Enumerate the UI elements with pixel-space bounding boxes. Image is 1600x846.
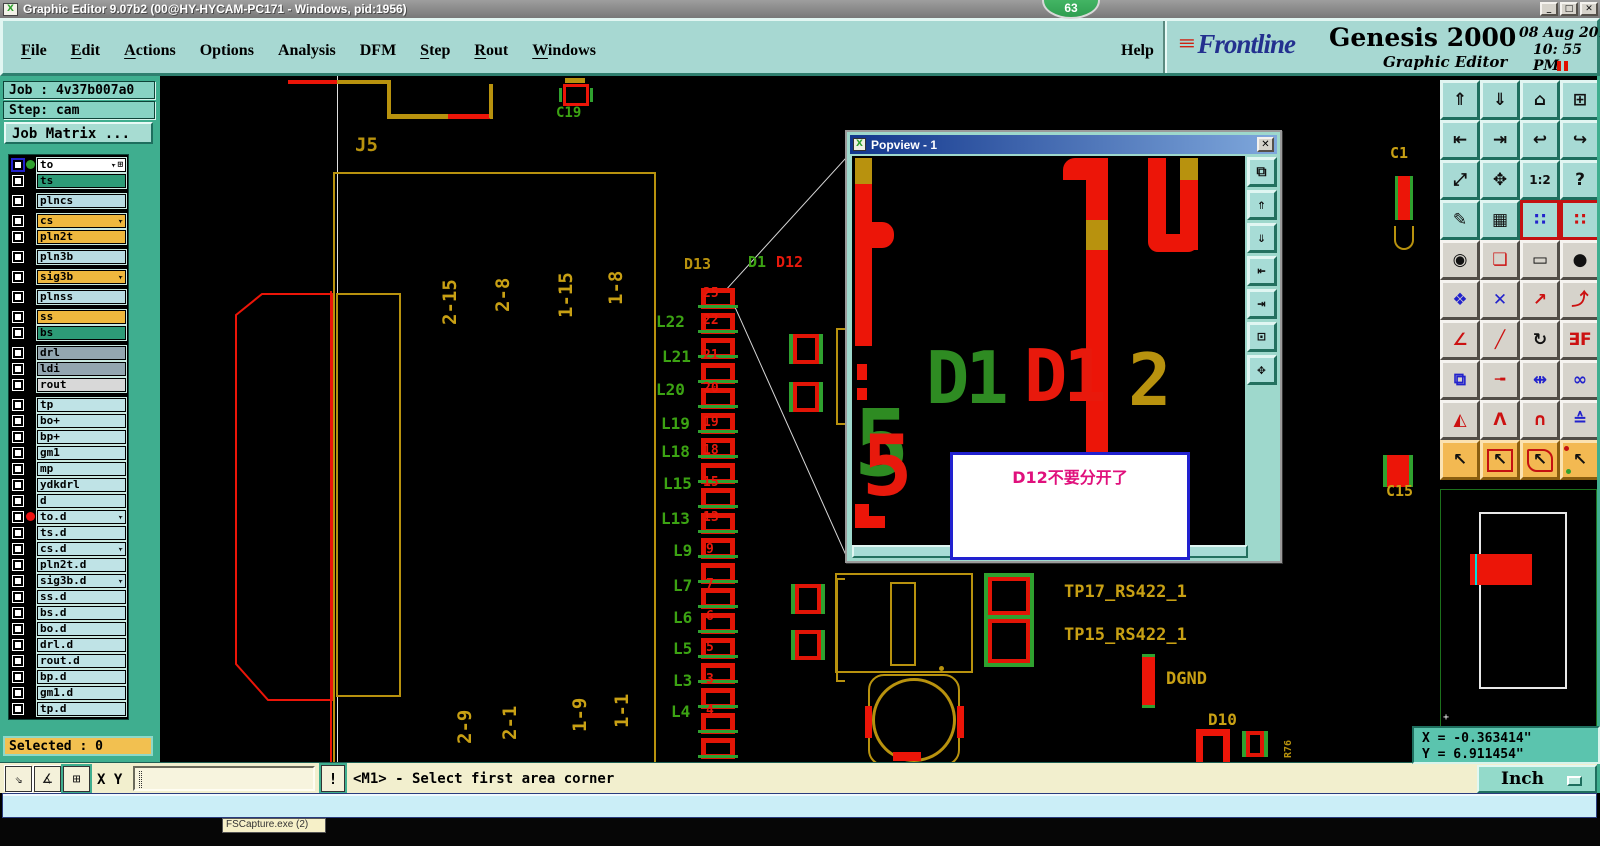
measure-button[interactable]: ▭: [1520, 240, 1560, 280]
layer-label: bp.d: [37, 670, 126, 684]
canvas-label: D1: [748, 255, 766, 270]
layer-label: pln2t: [37, 230, 126, 244]
layer-checkbox[interactable]: [13, 328, 23, 338]
popview-pan-left-button[interactable]: ⇤: [1247, 256, 1277, 286]
layer-cursor-icon: ➤: [116, 271, 125, 281]
measure-angle-button[interactable]: ∡: [34, 766, 61, 792]
canvas-label: 19: [703, 416, 719, 429]
move-point-button[interactable]: ↗: [1520, 280, 1560, 320]
canvas-label: TP15_RS422_1: [1064, 627, 1187, 644]
layer-cursor-icon: ➤: [116, 543, 125, 553]
popview-clone-button[interactable]: ⧉: [1247, 157, 1277, 187]
canvas-label: L9: [673, 543, 692, 559]
canvas-label: D13: [684, 257, 711, 272]
center-view-button-icon: ✥: [1493, 172, 1507, 189]
mirror-button-icon: ∃F: [1568, 332, 1591, 349]
canvas-label: L13: [661, 511, 690, 527]
menu-analysis[interactable]: Analysis: [278, 42, 336, 60]
rotate-button[interactable]: ↻: [1520, 320, 1560, 360]
profile-edit-button[interactable]: ❏: [1480, 240, 1520, 280]
copy-point-button[interactable]: ⤴: [1560, 280, 1600, 320]
status-bar: ⇘ ∡ ⊞ X Y : ! <M1> - Select first area c…: [0, 762, 1600, 793]
canvas-label: 13: [703, 511, 719, 524]
coordinate-y: Y = 6.911454": [1422, 747, 1598, 763]
arch-button-icon: ∩: [1533, 412, 1547, 429]
layer-row-to.d[interactable]: to.d➤: [11, 509, 126, 524]
layer-label: tp.d: [37, 702, 126, 716]
zoom-in-window-button-icon: ⇑: [1453, 92, 1467, 109]
canvas-label: 25: [703, 287, 719, 300]
layer-checkbox[interactable]: [13, 196, 23, 206]
pan-left-button-icon: ⇤: [1453, 132, 1467, 149]
home-view-button-icon: ⌂: [1534, 92, 1546, 109]
layer-label: ss: [37, 310, 126, 324]
mirror-button[interactable]: ∃F: [1560, 320, 1600, 360]
layer-display-alt-button[interactable]: ∷: [1560, 200, 1600, 240]
select-feature-button-icon: ◉: [1453, 252, 1468, 269]
layer-checkbox[interactable]: [13, 348, 23, 358]
measure-distance-button[interactable]: ⇘: [5, 766, 32, 792]
window-controls: _□✕: [1540, 2, 1598, 16]
peak-button[interactable]: Λ: [1480, 400, 1520, 440]
layer-checkbox[interactable]: [13, 480, 23, 490]
layer-row-sig3b[interactable]: sig3b➤: [11, 269, 126, 284]
layer-row-plnss[interactable]: plnss: [11, 289, 126, 304]
layer-display-button-icon: ∷: [1534, 212, 1546, 229]
dimension-button[interactable]: ⇹: [1520, 360, 1560, 400]
selected-count: Selected : 0: [3, 736, 153, 756]
select-pointer-button[interactable]: ↖: [1440, 440, 1480, 480]
copy-pad-button[interactable]: ⧉: [1440, 360, 1480, 400]
layer-row-mp[interactable]: mp: [11, 461, 126, 476]
layer-label: drl.d: [37, 638, 126, 652]
canvas-label: 20: [703, 382, 719, 395]
popview-zoom-out-button[interactable]: ⇓: [1247, 223, 1277, 253]
canvas-label: L7: [673, 578, 692, 594]
window-titlebar[interactable]: X Graphic Editor 9.07b2 (00@HY-HYCAM-PC1…: [0, 0, 1600, 18]
layer-checkbox[interactable]: [13, 364, 23, 374]
popview-zoom-in-button[interactable]: ⇑: [1247, 190, 1277, 220]
layer-grid-icon: ⊞: [118, 160, 123, 170]
minimize-button[interactable]: _: [1540, 2, 1558, 16]
move-point-button-icon: ↗: [1533, 292, 1547, 309]
menu-bar: FileEditActionsOptionsAnalysisDFMStepRou…: [0, 18, 1600, 76]
layer-checkbox[interactable]: [13, 672, 23, 682]
layer-row-pln2t[interactable]: pln2t: [11, 229, 126, 244]
layer-label: rout: [37, 378, 126, 392]
menu-file[interactable]: File: [21, 42, 47, 60]
navigator-marker-line: [1475, 554, 1477, 585]
date-display: 08 Aug 2016: [1519, 25, 1600, 41]
layer-label: bs: [37, 326, 126, 340]
net-select-button-icon: ❖: [1452, 292, 1467, 309]
layer-row-bp+[interactable]: bp+: [11, 429, 126, 444]
layer-label: d: [37, 494, 126, 508]
popview-label: D1: [1024, 340, 1103, 412]
layer-checkbox[interactable]: [13, 464, 23, 474]
peak-button-icon: Λ: [1493, 412, 1506, 429]
alert-button[interactable]: !: [321, 765, 345, 792]
canvas-label: 7: [706, 578, 714, 591]
arch-button[interactable]: ∩: [1520, 400, 1560, 440]
layer-checkbox[interactable]: [13, 512, 23, 522]
popview-window-icon: X: [853, 138, 866, 151]
canvas-label: 3: [706, 673, 714, 686]
layer-row-ts[interactable]: ts: [11, 173, 126, 188]
canvas-label: 2-15: [441, 279, 460, 325]
units-value: Inch: [1501, 769, 1544, 789]
layer-row-gm1[interactable]: gm1: [11, 445, 126, 460]
delete-feature-button[interactable]: ✕: [1480, 280, 1520, 320]
profile-view-button[interactable]: ↪: [1560, 120, 1600, 160]
units-toggle-icon[interactable]: [1567, 776, 1582, 786]
layer-checkbox[interactable]: [13, 496, 23, 506]
home-view-button[interactable]: ⌂: [1520, 80, 1560, 120]
canvas-label: L18: [661, 444, 690, 460]
layer-checkbox[interactable]: [13, 312, 23, 322]
layer-checkbox[interactable]: [13, 656, 23, 666]
annotation-note-text: D12不要分开了: [1012, 468, 1128, 487]
layer-label: sig3b➤: [37, 270, 126, 284]
layer-checkbox[interactable]: [13, 216, 23, 226]
layer-label: plncs: [37, 194, 126, 208]
layer-dot: [26, 512, 35, 521]
setup-tools-button-icon: ✎: [1453, 212, 1467, 229]
menu-dfm[interactable]: DFM: [360, 42, 396, 60]
copy-pad-button-icon: ⧉: [1454, 372, 1466, 389]
layer-row-to[interactable]: to➤⊞: [11, 157, 126, 172]
canvas-label: 5: [706, 641, 714, 654]
canvas-label: 4: [706, 704, 714, 717]
layer-label: ldi: [37, 362, 126, 376]
popview-label: 2: [1128, 344, 1167, 416]
xy-input[interactable]: [133, 766, 315, 791]
product-subtitle: Graphic Editor: [1383, 53, 1507, 71]
layer-cursor-icon: ➤: [116, 215, 125, 225]
layer-row-ldi[interactable]: ldi: [11, 361, 126, 376]
layer-label: cs➤: [37, 214, 126, 228]
zoom-fit-button[interactable]: ⤢: [1440, 160, 1480, 200]
layer-checkbox[interactable]: [13, 576, 23, 586]
layer-label: ts: [37, 174, 126, 188]
pv-trace: [1086, 220, 1108, 250]
logo-text: Frontline: [1197, 29, 1295, 60]
canvas-label: DGND: [1166, 671, 1207, 688]
coordinate-readout: X = -0.363414" Y = 6.911454": [1412, 726, 1600, 764]
canvas-label: 2-1: [501, 706, 520, 740]
layer-cursor-icon: ➤: [109, 159, 118, 169]
pv-trace: [855, 184, 872, 346]
select-feature-button[interactable]: ◉: [1440, 240, 1480, 280]
layer-row-bp.d[interactable]: bp.d: [11, 669, 126, 684]
menu-edit[interactable]: Edit: [71, 42, 100, 60]
layer-row-gm1.d[interactable]: gm1.d: [11, 685, 126, 700]
join-shapes-button-icon: ∞: [1573, 372, 1587, 389]
zoom-ratio-button-icon: 1:2: [1529, 174, 1551, 186]
select-polygon-button-icon: ↖: [1527, 449, 1553, 472]
pause-icon: [1557, 61, 1568, 71]
layer-label: ss.d: [37, 590, 126, 604]
pv-trace: [1148, 158, 1166, 240]
slope-measure-button-icon: ╱: [1495, 332, 1505, 349]
layer-label: ts.d: [37, 526, 126, 540]
arch-wide-button[interactable]: ≙: [1560, 400, 1600, 440]
menu-rout[interactable]: Rout: [474, 42, 508, 60]
menu-help[interactable]: Help: [1121, 42, 1154, 60]
canvas-label: L21: [662, 349, 691, 365]
layer-row-ss[interactable]: ss: [11, 309, 126, 324]
layer-checkbox[interactable]: [13, 272, 23, 282]
annotation-note: D12不要分开了: [950, 452, 1190, 560]
layer-checkbox[interactable]: [13, 608, 23, 618]
zoom-fit-button-icon: ⤢: [1453, 172, 1467, 189]
logo-arrows-icon: ≡: [1178, 33, 1194, 56]
layer-label: cs.d➤: [37, 542, 126, 556]
layer-checkbox[interactable]: [13, 176, 23, 186]
slope-measure-button[interactable]: ╱: [1480, 320, 1520, 360]
pv-trace: [855, 158, 872, 184]
select-polygon-button[interactable]: ↖: [1520, 440, 1560, 480]
layer-dot: [26, 160, 35, 169]
layer-row-cs.d[interactable]: cs.d➤: [11, 541, 126, 556]
layer-checkbox[interactable]: [13, 640, 23, 650]
select-net-button[interactable]: ↖: [1560, 440, 1600, 480]
brand-area: ≡ Frontline Genesis 2000 Graphic Editor …: [1171, 21, 1597, 73]
canvas-label: J5: [355, 136, 378, 155]
zoom-in-window-button[interactable]: ⇑: [1440, 80, 1480, 120]
net-select-button[interactable]: ❖: [1440, 280, 1480, 320]
previous-view-button[interactable]: ↩: [1520, 120, 1560, 160]
maximize-button[interactable]: □: [1560, 2, 1578, 16]
layer-label: gm1: [37, 446, 126, 460]
zoom-out-window-button-icon: ⇓: [1493, 92, 1507, 109]
popview-expand-button[interactable]: ✥: [1247, 355, 1277, 385]
layer-label: rout.d: [37, 654, 126, 668]
taskbar-tooltip: FSCapture.exe (2): [222, 818, 326, 833]
prompt-message: <M1> - Select first area corner: [353, 771, 614, 787]
canvas-label: 1-9: [571, 698, 590, 732]
select-frame-button-icon: ↖: [1487, 449, 1513, 472]
layer-row-bo.d[interactable]: bo.d: [11, 621, 126, 636]
pad-fill-button[interactable]: ●: [1560, 240, 1600, 280]
grid-snap-button[interactable]: ⊞: [63, 766, 90, 792]
select-net-button-icon: ↖: [1573, 452, 1587, 469]
layer-row-tp.d[interactable]: tp.d: [11, 701, 126, 716]
left-panel: Job : 4v37b007a0 Step: cam Job Matrix ..…: [0, 76, 160, 762]
frontline-logo: ≡ Frontline: [1181, 29, 1295, 60]
popview-close-button[interactable]: ✕: [1257, 137, 1274, 152]
canvas-label: TP17_RS422_1: [1064, 584, 1187, 601]
canvas-label: L19: [661, 416, 690, 432]
text-caret: [139, 771, 142, 788]
layer-label: drl: [37, 346, 126, 360]
layer-checkbox[interactable]: [13, 624, 23, 634]
layer-row-drl.d[interactable]: drl.d: [11, 637, 126, 652]
layer-checkbox[interactable]: [13, 380, 23, 390]
brand-separator: [1163, 21, 1167, 73]
layer-checkbox[interactable]: [13, 400, 23, 410]
center-view-button[interactable]: ✥: [1480, 160, 1520, 200]
layer-row-drl[interactable]: drl: [11, 345, 126, 360]
canvas-label: L20: [656, 382, 685, 398]
setup-tools-button[interactable]: ✎: [1440, 200, 1480, 240]
units-selector[interactable]: Inch: [1477, 765, 1597, 793]
layer-list: to➤⊞tsplncscs➤pln2tpln3bsig3b➤plnssssbsd…: [8, 154, 129, 720]
help-pointer-button[interactable]: ?: [1560, 160, 1600, 200]
pv-trace: [872, 222, 894, 248]
canvas-label: 1-1: [613, 694, 632, 728]
application-window: J5C19D13D1D12L22L21L20L19L18L15L13L9L7L6…: [0, 0, 1600, 846]
layer-display-button[interactable]: ∷: [1520, 200, 1560, 240]
navigator-panel[interactable]: +: [1440, 489, 1597, 730]
layer-checkbox[interactable]: [13, 704, 23, 714]
arch-wide-button-icon: ≙: [1573, 412, 1587, 429]
coordinate-x: X = -0.363414": [1422, 731, 1598, 747]
navigator-board-outline: [1479, 512, 1567, 689]
taskbar: FSCapture.exe (2): [0, 818, 1600, 846]
pan-left-button[interactable]: ⇤: [1440, 120, 1480, 160]
canvas-label: L22: [656, 314, 685, 330]
dimension-button-icon: ⇹: [1533, 372, 1547, 389]
help-pointer-button-icon: ?: [1575, 172, 1585, 189]
delete-feature-button-icon: ✕: [1493, 292, 1507, 309]
angle-measure-button[interactable]: ∠: [1440, 320, 1480, 360]
right-toolbar: ⇑⇓⌂⊞⇤⇥↩↪⤢✥1:2?✎▦∷∷◉❏▭●❖✕↗⤴∠╱↻∃F⧉╼⇹∞◭Λ∩≙↖…: [1440, 80, 1600, 480]
layer-row-ydkdrl[interactable]: ydkdrl: [11, 477, 126, 492]
layer-label: mp: [37, 462, 126, 476]
layer-cursor-icon: ➤: [116, 575, 125, 585]
zoom-ratio-button[interactable]: 1:2: [1520, 160, 1560, 200]
layer-checkbox[interactable]: [13, 528, 23, 538]
layer-label: tp: [37, 398, 126, 412]
split-view-xy-button[interactable]: ⊞: [1560, 80, 1600, 120]
layer-label: bp+: [37, 430, 126, 444]
layer-row-bs[interactable]: bs: [11, 325, 126, 340]
overlay-counter-value: 63: [1064, 1, 1077, 15]
canvas-label: C15: [1386, 484, 1413, 499]
canvas-label: 18: [703, 444, 719, 457]
navigator-origin-marker: +: [1443, 712, 1449, 723]
layer-row-rout[interactable]: rout: [11, 377, 126, 392]
canvas-label: L15: [663, 476, 692, 492]
layer-row-ss.d[interactable]: ss.d: [11, 589, 126, 604]
job-label: Job : 4v37b007a0: [3, 81, 155, 99]
layer-label: bo+: [37, 414, 126, 428]
angle-measure-button-icon: ∠: [1452, 332, 1467, 349]
canvas-label: L3: [673, 673, 692, 689]
copy-point-button-icon: ⤴: [1572, 292, 1589, 309]
layer-row-sig3b.d[interactable]: sig3b.d➤: [11, 573, 126, 588]
canvas-label: R76: [1284, 740, 1294, 758]
menu-actions[interactable]: Actions: [124, 42, 176, 60]
layer-label: to.d➤: [37, 510, 126, 524]
layer-label: pln3b: [37, 250, 126, 264]
canvas-label: D12: [776, 255, 803, 270]
menu-windows[interactable]: Windows: [532, 42, 596, 60]
step-label: Step: cam: [3, 101, 155, 119]
layer-checkbox[interactable]: [13, 448, 23, 458]
layer-row-d[interactable]: d: [11, 493, 126, 508]
window-title: Graphic Editor 9.07b2 (00@HY-HYCAM-PC171…: [23, 2, 407, 16]
layer-row-rout.d[interactable]: rout.d: [11, 653, 126, 668]
canvas-label: 22: [703, 314, 719, 327]
canvas-label: L4: [671, 704, 690, 720]
layer-checkbox[interactable]: [13, 560, 23, 570]
peak-small-button[interactable]: ◭: [1440, 400, 1480, 440]
layer-checkbox[interactable]: [13, 432, 23, 442]
stretch-line-button[interactable]: ╼: [1480, 360, 1520, 400]
select-pointer-button-icon: ↖: [1453, 452, 1467, 469]
select-frame-button[interactable]: ↖: [1480, 440, 1520, 480]
layer-checkbox[interactable]: [13, 292, 23, 302]
popview-label: 5: [862, 424, 909, 508]
command-strip[interactable]: [2, 793, 1597, 818]
app-icon: X: [3, 3, 18, 16]
layer-checkbox[interactable]: [13, 544, 23, 554]
layer-checkbox[interactable]: [13, 160, 23, 170]
layer-row-ts.d[interactable]: ts.d: [11, 525, 126, 540]
navigator-viewport[interactable]: [1470, 554, 1532, 585]
layer-checkbox[interactable]: [13, 416, 23, 426]
canvas-label: L6: [673, 610, 692, 626]
layer-row-pln3b[interactable]: pln3b: [11, 249, 126, 264]
canvas-label: D10: [1208, 712, 1237, 728]
peak-small-button-icon: ◭: [1453, 412, 1466, 429]
layer-checkbox[interactable]: [13, 688, 23, 698]
pan-right-button[interactable]: ⇥: [1480, 120, 1520, 160]
split-view-xy-button-icon: ⊞: [1573, 92, 1587, 109]
menu-items: FileEditActionsOptionsAnalysisDFMStepRou…: [21, 42, 596, 60]
stretch-line-button-icon: ╼: [1495, 372, 1505, 389]
layer-cursor-icon: ➤: [116, 511, 125, 521]
grid-toggle-button[interactable]: ▦: [1480, 200, 1520, 240]
canvas-label: L5: [673, 641, 692, 657]
canvas-label: 1-15: [557, 272, 576, 318]
layer-label: bs.d: [37, 606, 126, 620]
zoom-out-window-button[interactable]: ⇓: [1480, 80, 1520, 120]
job-matrix-button[interactable]: Job Matrix ...: [4, 122, 153, 144]
layer-checkbox[interactable]: [13, 252, 23, 262]
join-shapes-button[interactable]: ∞: [1560, 360, 1600, 400]
layer-checkbox[interactable]: [13, 232, 23, 242]
layer-checkbox[interactable]: [13, 592, 23, 602]
layer-row-bo+[interactable]: bo+: [11, 413, 126, 428]
product-name: Genesis 2000: [1329, 23, 1516, 52]
canvas-label: 6: [706, 610, 714, 623]
pv-trace: [857, 364, 867, 380]
popview-pan-right-button[interactable]: ⇥: [1247, 289, 1277, 319]
layer-row-tp[interactable]: tp: [11, 397, 126, 412]
layer-label: ydkdrl: [37, 478, 126, 492]
layer-row-bs.d[interactable]: bs.d: [11, 605, 126, 620]
popview-title: Popview - 1: [871, 138, 937, 152]
menu-options[interactable]: Options: [200, 42, 254, 60]
layer-row-cs[interactable]: cs➤: [11, 213, 126, 228]
layer-label: to➤⊞: [37, 158, 126, 172]
popview-titlebar[interactable]: X Popview - 1 ✕: [850, 135, 1277, 154]
popview-shrink-button[interactable]: ⊡: [1247, 322, 1277, 352]
rotate-button-icon: ↻: [1533, 332, 1547, 349]
profile-view-button-icon: ↪: [1573, 132, 1587, 149]
canvas-label: C19: [556, 106, 581, 120]
close-button[interactable]: ✕: [1580, 2, 1598, 16]
profile-edit-button-icon: ❏: [1492, 252, 1507, 269]
menu-step[interactable]: Step: [420, 42, 450, 60]
canvas-label: 2-8: [494, 278, 513, 312]
canvas-label: 1-8: [607, 271, 626, 305]
layer-row-pln2t.d[interactable]: pln2t.d: [11, 557, 126, 572]
layer-row-plncs[interactable]: plncs: [11, 193, 126, 208]
